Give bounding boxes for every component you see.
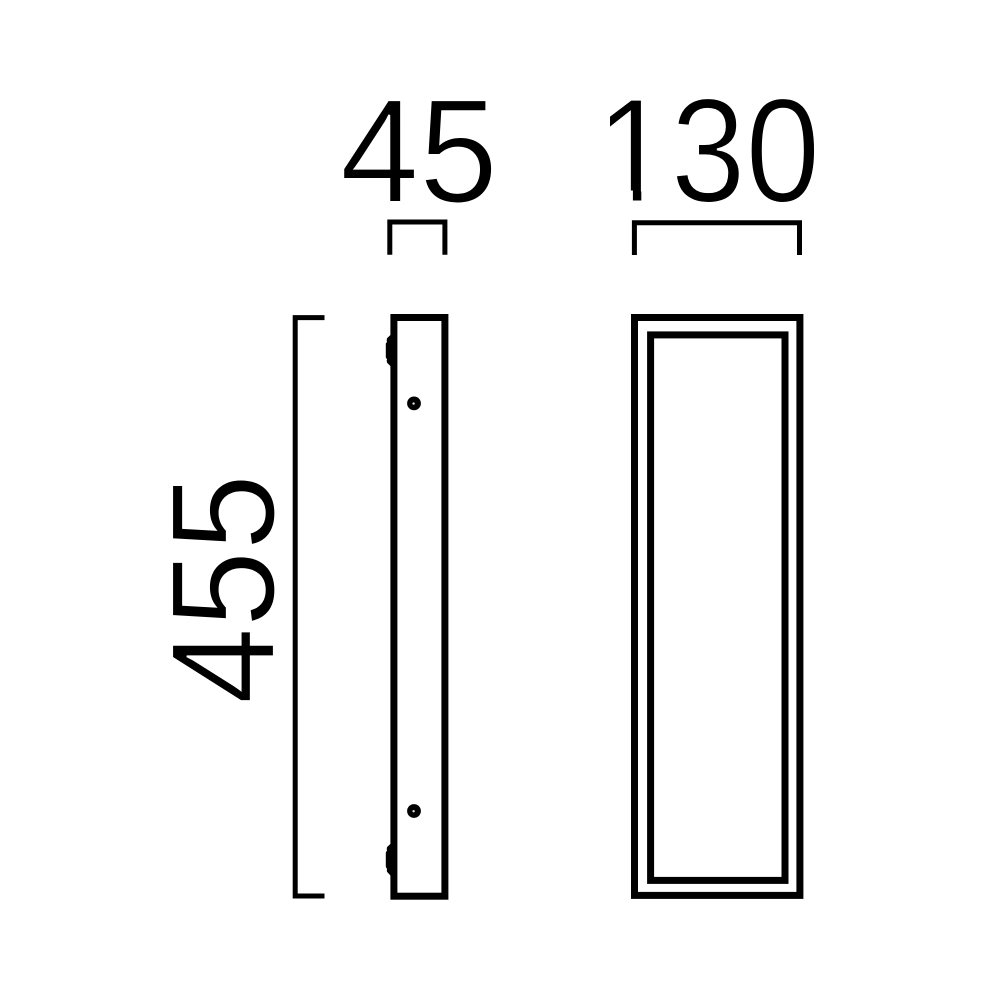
svg-text:130: 130 — [596, 69, 820, 234]
svg-text:455: 455 — [141, 474, 306, 705]
svg-text:45: 45 — [340, 69, 498, 234]
